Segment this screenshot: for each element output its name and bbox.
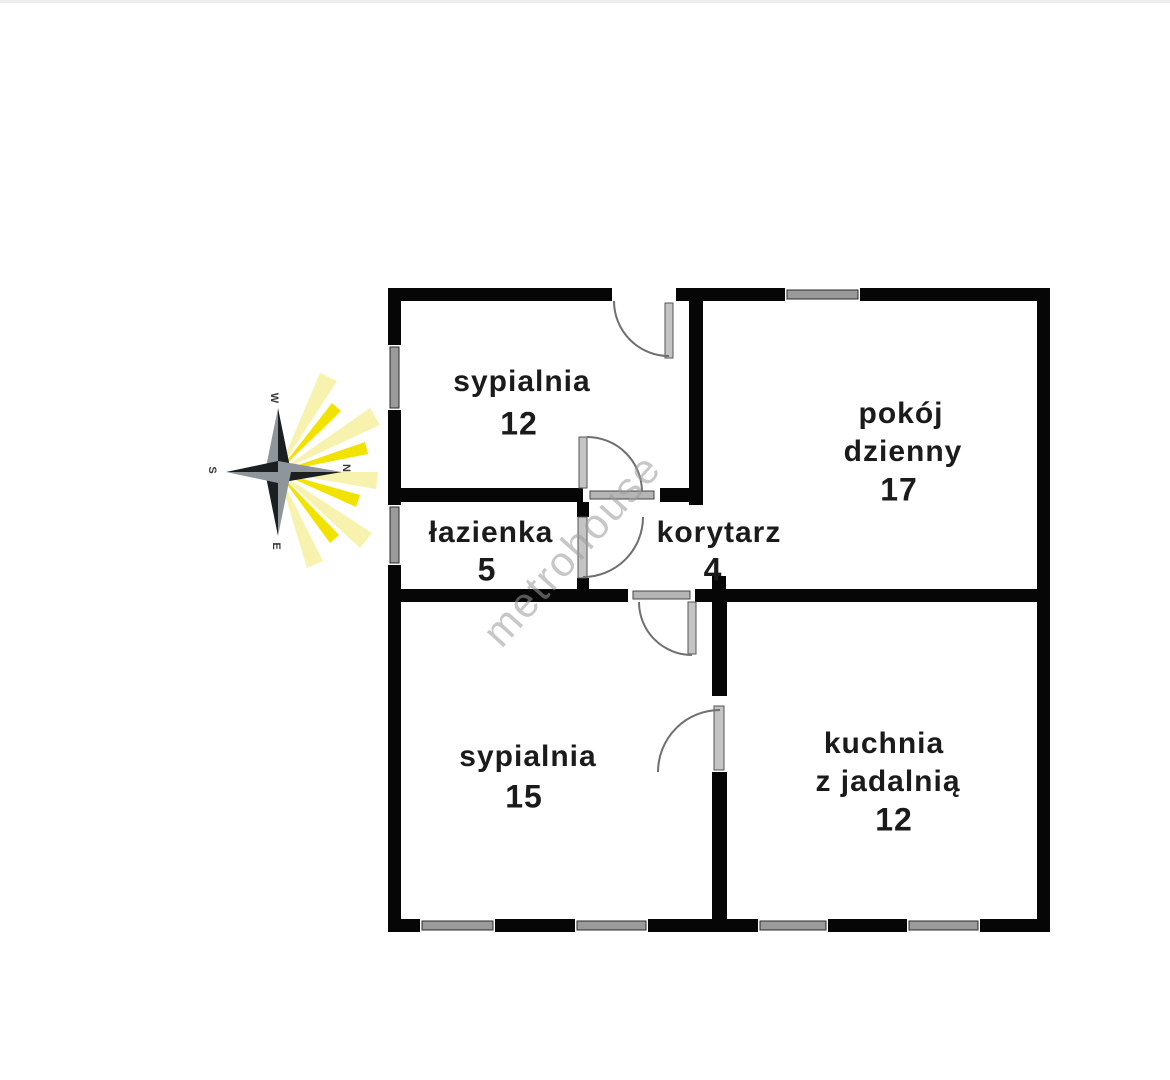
wall-top-right (860, 288, 1050, 301)
wall-right (1037, 288, 1050, 932)
room-area-lazienka: 5 (478, 552, 497, 589)
compass-letter-top: W (268, 393, 280, 403)
floor-plan-page: metrohouse sypialnia 12 pokój dzienny 17… (0, 0, 1170, 1080)
window-bottom-kitchen-b (909, 921, 978, 930)
door-swing-arc (614, 301, 669, 356)
wall-bottom-4 (828, 919, 907, 932)
wall-top-left (388, 288, 612, 301)
window-left-bedroom1 (390, 347, 399, 408)
door-leaf (688, 602, 696, 654)
compass-letter-right: N (340, 464, 352, 472)
wall-bedroom1-bath-left (401, 488, 583, 502)
compass-letter-bottom: E (270, 542, 282, 549)
wall-bedroom1-living (689, 301, 703, 505)
room-label-kuchnia-line2: z jadalnią (815, 765, 960, 799)
door-leaf (714, 706, 724, 770)
wall-bottom-5 (980, 919, 1050, 932)
room-area-kuchnia: 12 (875, 802, 913, 839)
wall-left-1 (388, 288, 401, 345)
compass-rose (226, 373, 380, 568)
wall-top-mid (676, 288, 785, 301)
room-area-pokoj: 17 (880, 472, 918, 509)
door-top-bedroom1 (614, 301, 673, 358)
door-swing-arc (639, 602, 692, 655)
room-label-sypialnia-1: sypialnia (453, 365, 590, 399)
room-label-pokoj: pokój (859, 397, 944, 431)
wall-left-2 (388, 410, 401, 505)
wall-bedroom2-kitchen-bottom (712, 772, 727, 919)
room-label-pokoj-line2: dzienny (844, 435, 963, 469)
window-bottom-bedroom2-b (577, 921, 646, 930)
wall-bedroom1-hall-right (660, 488, 701, 502)
wall-living-kitchen (695, 589, 1050, 602)
room-area-sypialnia-2: 15 (505, 779, 543, 816)
compass-letter-left: S (206, 466, 218, 473)
window-top-living (787, 290, 858, 299)
door-bedroom2-kitchen (658, 706, 724, 772)
door-leaf (665, 303, 673, 358)
wall-bottom-1 (388, 919, 420, 932)
room-area-sypialnia-1: 12 (500, 406, 538, 443)
door-threshold (633, 591, 690, 599)
room-label-sypialnia-2: sypialnia (459, 740, 596, 774)
wall-left-3 (388, 565, 401, 932)
door-leaf (579, 437, 587, 488)
wall-bedroom2-kitchen-top (712, 602, 727, 696)
room-area-korytarz: 4 (704, 552, 723, 589)
room-label-korytarz: korytarz (657, 516, 782, 550)
wall-bottom-3 (648, 919, 758, 932)
compass-star (226, 408, 342, 536)
door-swing-arc (658, 710, 720, 772)
room-label-lazienka: łazienka (429, 516, 554, 550)
window-left-bathroom (390, 507, 399, 563)
door-hall-bedroom2 (633, 591, 696, 655)
window-bottom-kitchen-a (760, 921, 826, 930)
window-bottom-bedroom2-a (422, 921, 493, 930)
room-label-kuchnia: kuchnia (824, 727, 944, 761)
wall-bottom-2 (495, 919, 575, 932)
